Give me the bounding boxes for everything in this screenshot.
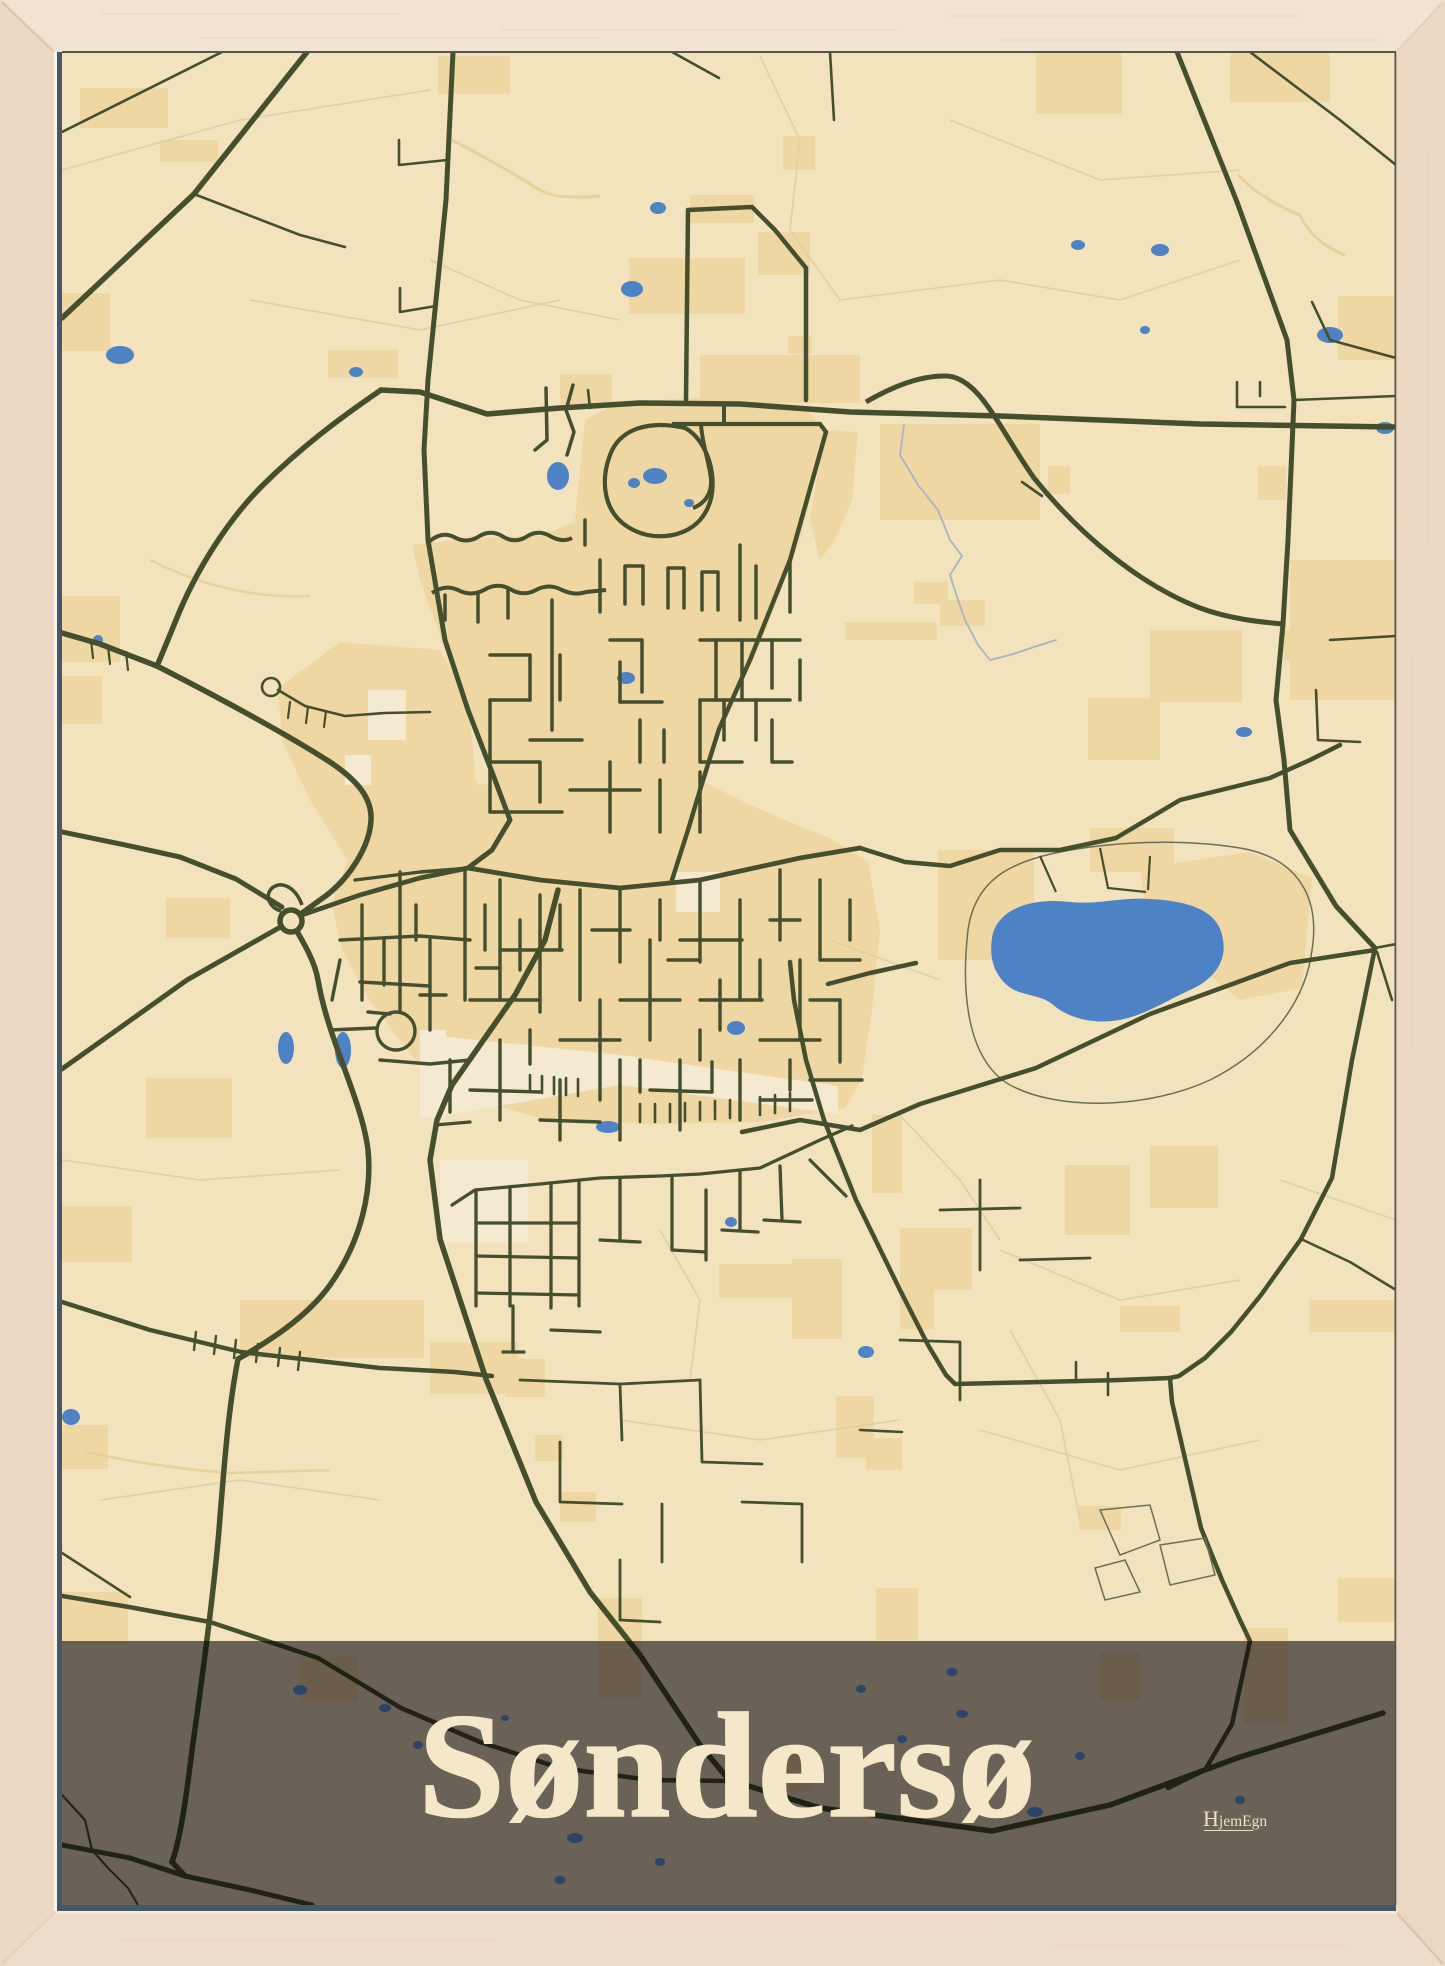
svg-text:Søndersø: Søndersø (418, 1683, 1036, 1849)
